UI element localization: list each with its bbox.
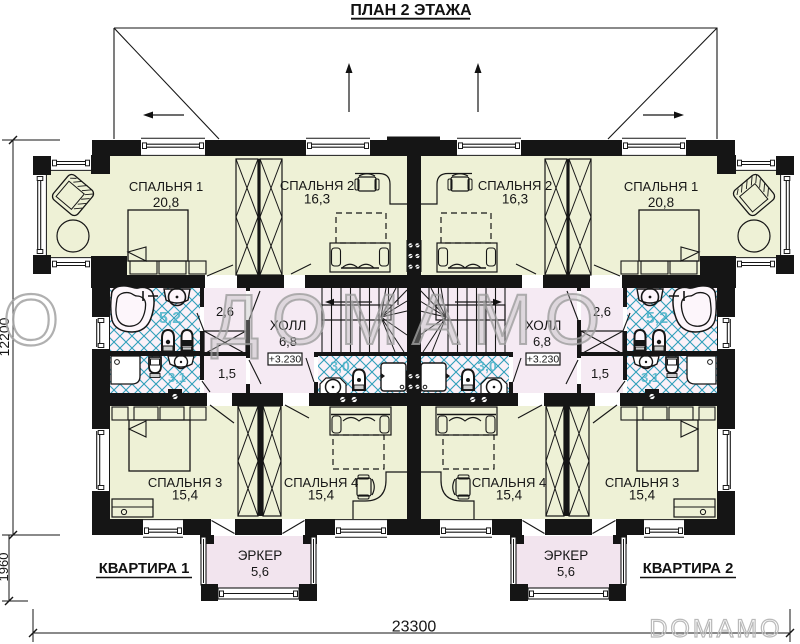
svg-text:СПАЛЬНЯ 1: СПАЛЬНЯ 1 bbox=[624, 179, 698, 194]
svg-text:16,3: 16,3 bbox=[304, 192, 330, 207]
svg-text:23300: 23300 bbox=[392, 619, 437, 636]
svg-text:3,0: 3,0 bbox=[330, 358, 350, 374]
svg-text:1,5: 1,5 bbox=[591, 366, 609, 381]
svg-text:КВАРТИРА 2: КВАРТИРА 2 bbox=[643, 561, 734, 577]
svg-text:15,4: 15,4 bbox=[496, 488, 523, 503]
svg-text:5,2: 5,2 bbox=[646, 310, 668, 327]
svg-text:3,1: 3,1 bbox=[641, 370, 659, 385]
svg-text:5,6: 5,6 bbox=[557, 564, 575, 579]
svg-text:ЭРКЕР: ЭРКЕР bbox=[544, 548, 589, 563]
svg-text:15,4: 15,4 bbox=[629, 488, 656, 503]
svg-text:3,0: 3,0 bbox=[477, 358, 497, 374]
svg-text:15,4: 15,4 bbox=[172, 488, 199, 503]
svg-text:20,8: 20,8 bbox=[153, 195, 179, 210]
svg-text:ПЛАН 2 ЭТАЖА: ПЛАН 2 ЭТАЖА bbox=[350, 2, 472, 19]
svg-text:DOMAMO: DOMAMO bbox=[649, 615, 782, 643]
svg-text:3,1: 3,1 bbox=[168, 370, 186, 385]
svg-text:15,4: 15,4 bbox=[308, 488, 335, 503]
svg-text:ЭРКЕР: ЭРКЕР bbox=[238, 548, 283, 563]
svg-text:1960: 1960 bbox=[0, 553, 11, 582]
svg-text:О: О bbox=[3, 281, 59, 361]
svg-text:ДОМАМО: ДОМАМО bbox=[211, 281, 613, 360]
svg-text:20,8: 20,8 bbox=[648, 195, 674, 210]
svg-text:5,6: 5,6 bbox=[251, 564, 269, 579]
svg-text:СПАЛЬНЯ 1: СПАЛЬНЯ 1 bbox=[129, 179, 203, 194]
svg-text:КВАРТИРА 1: КВАРТИРА 1 bbox=[99, 561, 190, 577]
svg-text:5,2: 5,2 bbox=[159, 310, 181, 327]
svg-text:1,5: 1,5 bbox=[218, 366, 236, 381]
svg-text:16,3: 16,3 bbox=[502, 192, 528, 207]
